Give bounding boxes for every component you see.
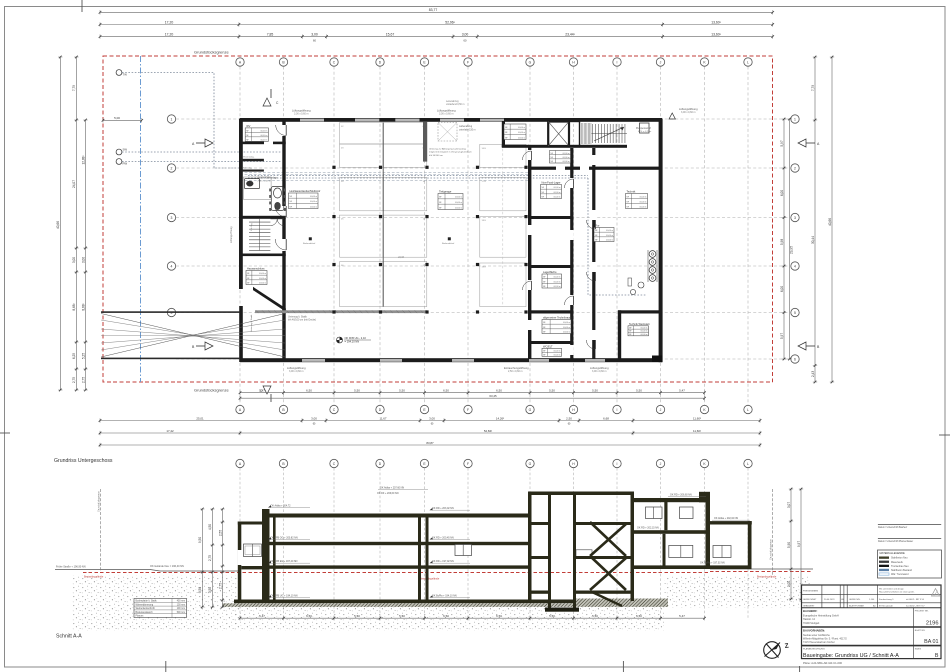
svg-text:MATERIALLEGENDE: MATERIALLEGENDE xyxy=(880,551,905,555)
svg-text:Entrauchungsöffnung: Entrauchungsöffnung xyxy=(504,366,529,370)
svg-text:17,20: 17,20 xyxy=(165,32,174,36)
svg-text:74172 Neuenstadt am Kocher: 74172 Neuenstadt am Kocher xyxy=(803,641,835,644)
svg-text:Hackstr. 12: Hackstr. 12 xyxy=(803,618,816,621)
svg-text:00,00 m: 00,00 m xyxy=(259,273,266,275)
svg-text:2196: 2196 xyxy=(926,621,939,627)
svg-text:5,97: 5,97 xyxy=(780,333,784,339)
svg-text:möglst mit integriert in Versp: möglst mit integriert in Verspruzug/unte… xyxy=(429,151,472,154)
svg-text:WC/ELT: WC/ELT xyxy=(543,344,553,348)
svg-text:Bodenplatte lt. Statik: Bodenplatte lt. Statik xyxy=(136,600,158,603)
svg-text:Unterzug zur Abfangung Ladenau: Unterzug zur Abfangung Ladenaufzug xyxy=(429,148,467,151)
svg-text:Planum: Planum xyxy=(136,616,144,618)
svg-text:13x Stg: 13x Stg xyxy=(250,223,253,231)
svg-text:00,00 m: 00,00 m xyxy=(518,137,525,139)
svg-text:00,00 m: 00,00 m xyxy=(554,192,561,194)
svg-text:tel 06/02 - 887 9 56: tel 06/02 - 887 9 56 xyxy=(906,598,925,601)
svg-text:3,00: 3,00 xyxy=(72,257,76,263)
svg-text:00,00 m: 00,00 m xyxy=(518,127,525,129)
svg-text:19 E: 19 E xyxy=(482,267,487,269)
svg-text:G: G xyxy=(529,61,532,65)
svg-text:SW: SW xyxy=(123,148,128,152)
svg-text:4: 4 xyxy=(171,265,173,269)
svg-text:Frühe Straße + 196,90 NN: Frühe Straße + 196,90 NN xyxy=(56,566,86,569)
svg-text:5,47: 5,47 xyxy=(259,614,265,618)
svg-text:OK Attika + 202,02 NN: OK Attika + 202,02 NN xyxy=(714,517,738,520)
svg-text:F: F xyxy=(467,408,469,412)
svg-text:4: 4 xyxy=(794,265,796,269)
svg-text:00,00 m: 00,00 m xyxy=(261,139,268,141)
svg-text:13,60²: 13,60² xyxy=(711,32,721,36)
svg-text:2,50: 2,50 xyxy=(566,416,572,420)
svg-text:00,00 m: 00,00 m xyxy=(455,207,462,209)
svg-text:G: G xyxy=(529,408,532,412)
svg-text:6,50: 6,50 xyxy=(496,389,502,393)
svg-text:3,00: 3,00 xyxy=(429,416,435,420)
svg-text:00,00 m: 00,00 m xyxy=(554,187,561,189)
svg-text:OK Gelände Neu = 196,40 NN: OK Gelände Neu = 196,40 NN xyxy=(150,565,184,568)
svg-text:100 mm: 100 mm xyxy=(177,608,185,610)
svg-text:00,00 m: 00,00 m xyxy=(606,235,613,237)
svg-text:OK BuPla + 197,02 NN: OK BuPla + 197,02 NN xyxy=(700,562,725,565)
svg-text:7,85: 7,85 xyxy=(267,32,274,36)
svg-text:83,87: 83,87 xyxy=(426,441,434,445)
svg-text:00,00 m: 00,00 m xyxy=(641,331,648,333)
svg-text:00,00 m: 00,00 m xyxy=(563,161,570,163)
svg-text:00,00 m: 00,00 m xyxy=(563,322,570,324)
svg-text:J: J xyxy=(660,408,662,412)
svg-text:Datum / Unterschrift Planverfa: Datum / Unterschrift Planverfasser xyxy=(878,540,913,543)
svg-text:00,00 m: 00,00 m xyxy=(455,202,462,204)
svg-text:30,44: 30,44 xyxy=(811,236,815,244)
svg-text:00,00 m: 00,00 m xyxy=(640,206,647,208)
svg-text:6,50: 6,50 xyxy=(496,614,502,618)
svg-text:2,75: 2,75 xyxy=(208,555,212,561)
svg-text:Grundriss Untergeschoss: Grundriss Untergeschoss xyxy=(54,458,113,464)
svg-text:I: I xyxy=(617,408,618,412)
svg-text:b/h 40/100 cm (mit Decke): b/h 40/100 cm (mit Decke) xyxy=(288,319,316,322)
svg-text:OK RD + 200,45 NN: OK RD + 200,45 NN xyxy=(432,537,454,540)
svg-text:5,50: 5,50 xyxy=(354,389,360,393)
svg-text:2,50 x 0,60 m: 2,50 x 0,60 m xyxy=(508,370,523,373)
svg-text:fax 06/02 - 887 9 57: fax 06/02 - 887 9 57 xyxy=(906,606,925,608)
svg-text:Baueingabe: Grundriss UG / Sch: Baueingabe: Grundriss UG / Schnitt A-A xyxy=(803,653,899,659)
svg-text:9,50: 9,50 xyxy=(198,537,202,543)
svg-text:F: F xyxy=(467,61,469,65)
svg-text:3,00: 3,00 xyxy=(311,32,318,36)
svg-text:allgemeiner Technikraum: allgemeiner Technikraum xyxy=(543,316,572,320)
svg-text:23,44²: 23,44² xyxy=(565,32,575,36)
svg-text:29,95: 29,95 xyxy=(789,246,793,254)
svg-text:87700 aalstadt: 87700 aalstadt xyxy=(879,605,893,608)
svg-text:6,50: 6,50 xyxy=(443,389,449,393)
svg-text:500 mm: 500 mm xyxy=(177,612,185,614)
svg-text:3,00 x 0,60 m: 3,00 x 0,60 m xyxy=(294,113,309,116)
svg-text:Stahlbeton Bestand: Stahlbeton Bestand xyxy=(891,569,913,572)
svg-text:00,00 m: 00,00 m xyxy=(554,196,561,198)
svg-text:11,60²: 11,60² xyxy=(693,429,701,433)
svg-text:Grundstücksgrenze: Grundstücksgrenze xyxy=(194,388,229,393)
svg-text:OK BuPla + 194,10 NN: OK BuPla + 194,10 NN xyxy=(432,595,457,598)
svg-text:OK DF + 206,60 NN: OK DF + 206,60 NN xyxy=(377,492,399,495)
svg-text:Leitenabzug: Leitenabzug xyxy=(446,100,459,103)
svg-text:5,50: 5,50 xyxy=(399,614,405,618)
svg-text:Grundstücksgrenze: Grundstücksgrenze xyxy=(194,50,229,55)
svg-text:Wär. Trennwand: Wär. Trennwand xyxy=(891,573,909,576)
svg-text:Tiefgarage: Tiefgarage xyxy=(439,190,452,194)
svg-text:3,00 x 0,60 m: 3,00 x 0,60 m xyxy=(289,370,304,373)
svg-text:11,60²: 11,60² xyxy=(693,416,701,420)
svg-text:5,25: 5,25 xyxy=(81,353,85,359)
svg-text:3,50: 3,50 xyxy=(198,587,202,593)
svg-text:OK RD + 203,02 NN: OK RD + 203,02 NN xyxy=(432,507,454,510)
svg-text:Technik: Technik xyxy=(627,190,636,194)
svg-text:5,50: 5,50 xyxy=(592,614,598,618)
svg-text:= 194,10 NN: = 194,10 NN xyxy=(345,340,360,344)
svg-text:Heizkastenlander/Multiroof: Heizkastenlander/Multiroof xyxy=(290,189,321,193)
svg-text:J: J xyxy=(660,462,662,466)
svg-text:J: J xyxy=(660,61,662,65)
svg-text:3,00: 3,00 xyxy=(787,581,791,587)
svg-text:17,20: 17,20 xyxy=(165,20,174,24)
svg-text:1:100: 1:100 xyxy=(869,599,875,601)
svg-text:25,01: 25,01 xyxy=(196,416,204,420)
svg-text:6,50: 6,50 xyxy=(306,389,312,393)
svg-text:RW: RW xyxy=(123,162,128,166)
svg-text:Mauerwerk: Mauerwerk xyxy=(891,561,904,564)
svg-text:Sauberkeitsschicht: Sauberkeitsschicht xyxy=(136,607,156,610)
svg-text:5,47: 5,47 xyxy=(679,614,685,618)
svg-text:3: 3 xyxy=(171,216,173,220)
svg-text:12,88²: 12,88² xyxy=(81,155,85,164)
svg-text:24,07: 24,07 xyxy=(72,180,76,188)
svg-text:5,50: 5,50 xyxy=(636,614,642,618)
svg-text:Wärmedämmung: Wärmedämmung xyxy=(136,603,154,606)
svg-text:00,00 m: 00,00 m xyxy=(518,132,525,134)
svg-text:8,68²: 8,68² xyxy=(72,303,76,310)
svg-text:unterlabt 0,50 m: unterlabt 0,50 m xyxy=(459,128,476,131)
svg-text:Wilhelm-Mägdefrau-Str. 5 / Flu: Wilhelm-Mägdefrau-Str. 5 / Flurst. 4017/… xyxy=(803,637,847,640)
svg-text:WV: WV xyxy=(246,124,250,128)
svg-text:00,00 m: 00,00 m xyxy=(641,334,648,336)
svg-text:3: 3 xyxy=(794,216,796,220)
svg-text:00,00 m: 00,00 m xyxy=(554,350,561,352)
svg-text:14,26²: 14,26² xyxy=(496,416,504,420)
svg-text:BAUHERR:: BAUHERR: xyxy=(803,609,817,613)
svg-text:40,66: 40,66 xyxy=(56,221,60,229)
svg-text:00,00 m: 00,00 m xyxy=(261,130,268,132)
svg-text:11,67: 11,67 xyxy=(379,416,386,420)
svg-text:00,00 m: 00,00 m xyxy=(310,201,317,203)
svg-text:OK RD + 206,60 NN: OK RD + 206,60 NN xyxy=(670,493,692,496)
svg-text:Bodenablauf: Bodenablauf xyxy=(442,243,455,245)
svg-text:00,00 m: 00,00 m xyxy=(554,281,561,283)
svg-text:00,00 m: 00,00 m xyxy=(641,327,648,329)
svg-text:5,50: 5,50 xyxy=(354,614,360,618)
svg-text:1: 1 xyxy=(794,118,796,122)
svg-text:2,75: 2,75 xyxy=(81,377,85,383)
svg-text:5,47: 5,47 xyxy=(679,389,685,393)
svg-text:Non-Food-Lager: Non-Food-Lager xyxy=(542,181,561,185)
svg-text:I: I xyxy=(617,462,618,466)
svg-text:4,76 x 4,76 m: 4,76 x 4,76 m xyxy=(638,131,651,133)
svg-text:17,42: 17,42 xyxy=(166,429,174,433)
svg-text:Trockenbau Neu: Trockenbau Neu xyxy=(891,565,909,568)
svg-text:5,50: 5,50 xyxy=(592,389,598,393)
svg-text:GEÄNDERT: GEÄNDERT xyxy=(803,605,815,608)
svg-text:Kälteübg.: Kälteübg. xyxy=(243,166,253,169)
svg-text:INDEX: INDEX xyxy=(915,649,922,651)
svg-text:Wir architekten und design: Wir architekten und design xyxy=(879,587,904,590)
svg-text:00,00 m: 00,00 m xyxy=(563,327,570,329)
svg-text:00,00 m: 00,00 m xyxy=(554,354,561,356)
svg-text:OK Attika + 207,60 NN: OK Attika + 207,60 NN xyxy=(380,487,404,490)
svg-text:PLANBEZEICHNUNG:: PLANBEZEICHNUNG: xyxy=(803,648,826,651)
svg-text:Evangelische Heimstiftung GmbH: Evangelische Heimstiftung GmbH xyxy=(803,615,839,618)
svg-text:Technik Werkstatt: Technik Werkstatt xyxy=(629,322,650,326)
svg-text:16 E: 16 E xyxy=(482,148,487,150)
svg-text:BLATT NR.: BLATT NR. xyxy=(915,629,926,632)
svg-text:6,50: 6,50 xyxy=(306,614,312,618)
svg-text:1: 1 xyxy=(171,118,173,122)
svg-text:OK FFB OG + 200,82 NN: OK FFB OG + 200,82 NN xyxy=(271,537,298,540)
svg-text:2,75: 2,75 xyxy=(218,583,222,589)
svg-text:3,00 x 0,60 m: 3,00 x 0,60 m xyxy=(681,111,696,114)
svg-text:2: 2 xyxy=(794,167,796,171)
svg-text:Lüftungsöffnung: Lüftungsöffnung xyxy=(287,366,306,370)
svg-text:00,00 m: 00,00 m xyxy=(563,157,570,159)
svg-text:3,00: 3,00 xyxy=(462,32,469,36)
svg-text:Pläne: AuS-NBA-AR-GR-U1-000: Pläne: AuS-NBA-AR-GR-U1-000 xyxy=(803,661,842,665)
svg-text:Pumpensumpf: Pumpensumpf xyxy=(636,128,651,130)
svg-text:L: L xyxy=(747,61,749,65)
svg-text:Datum / Unterschrift Bauherr: Datum / Unterschrift Bauherr xyxy=(878,526,907,529)
svg-text:100 mm: 100 mm xyxy=(177,604,185,606)
svg-text:5,47: 5,47 xyxy=(259,389,265,393)
svg-text:3,50: 3,50 xyxy=(208,587,212,593)
svg-text:3,00 x 0,60 m: 3,00 x 0,60 m xyxy=(439,113,454,116)
svg-text:00,00 m: 00,00 m xyxy=(606,230,613,232)
svg-text:umlaufend 0,50 m: umlaufend 0,50 m xyxy=(446,104,464,106)
svg-text:b/h 30/100 cm: b/h 30/100 cm xyxy=(429,155,443,157)
svg-text:BLATTFORMAT: BLATTFORMAT xyxy=(849,605,865,608)
svg-text:40,66: 40,66 xyxy=(828,218,832,226)
svg-text:BAUVORHABEN:: BAUVORHABEN: xyxy=(803,628,825,632)
svg-text:I: I xyxy=(617,61,618,65)
svg-text:18 E: 18 E xyxy=(482,220,487,222)
svg-text:Bodenablauf: Bodenablauf xyxy=(303,243,316,245)
svg-text:Lagerfläche: Lagerfläche xyxy=(543,270,557,274)
svg-text:OK FFB EG + 197,40 NN: OK FFB EG + 197,40 NN xyxy=(271,560,298,563)
svg-text:Bodenaustausch: Bodenaustausch xyxy=(136,611,154,614)
svg-text:3,07: 3,07 xyxy=(787,502,791,508)
svg-text:5,90: 5,90 xyxy=(787,542,791,548)
svg-text:3,00: 3,00 xyxy=(81,257,85,263)
svg-text:00,00 m: 00,00 m xyxy=(259,278,266,280)
svg-text:GEZEICHNET: GEZEICHNET xyxy=(803,599,817,601)
svg-text:3,00: 3,00 xyxy=(311,416,317,420)
svg-text:6,50: 6,50 xyxy=(443,614,449,618)
svg-text:FREIGEGEBEN: FREIGEGEBEN xyxy=(803,591,819,593)
svg-text:2: 2 xyxy=(171,167,173,171)
svg-text:B: B xyxy=(935,653,939,659)
svg-text:00,00 m: 00,00 m xyxy=(606,239,613,241)
svg-text:00,00 m: 00,00 m xyxy=(259,282,266,284)
svg-text:7,79: 7,79 xyxy=(811,85,815,91)
svg-text:Bestandsgelände: Bestandsgelände xyxy=(84,576,104,579)
svg-text:Hausanschluss: Hausanschluss xyxy=(247,267,265,271)
svg-text:8,68²: 8,68² xyxy=(81,303,85,310)
svg-text:Wärmeübg.: Wärmeübg. xyxy=(243,156,255,159)
svg-text:52,84²: 52,84² xyxy=(484,429,492,433)
svg-text:Grundstücksgrenze: Grundstücksgrenze xyxy=(98,491,101,512)
svg-text:6: 6 xyxy=(794,358,796,362)
svg-text:6,68: 6,68 xyxy=(603,416,609,420)
svg-text:83,77: 83,77 xyxy=(429,8,438,12)
svg-text:00,00 m: 00,00 m xyxy=(640,196,647,198)
svg-text:TW: TW xyxy=(123,73,128,77)
svg-text:5,97: 5,97 xyxy=(780,140,784,146)
svg-text:Haus pfäff und färben wir eine: Haus pfäff und färben wir einen gestln. xyxy=(879,591,915,594)
svg-text:5,50: 5,50 xyxy=(636,389,642,393)
svg-text:450 mm: 450 mm xyxy=(177,601,185,603)
svg-text:PROJEKT NR.: PROJEKT NR. xyxy=(915,610,929,612)
svg-text:23,08: 23,08 xyxy=(398,257,404,259)
svg-text:00,00 m: 00,00 m xyxy=(310,196,317,198)
svg-text:13,60²: 13,60² xyxy=(711,20,721,24)
svg-text:20.04.2023: 20.04.2023 xyxy=(824,599,835,601)
svg-text:52,96²: 52,96² xyxy=(445,20,455,24)
svg-text:Bestandsgelände: Bestandsgelände xyxy=(420,578,440,581)
svg-text:BA 01: BA 01 xyxy=(924,639,938,645)
svg-text:L: L xyxy=(747,462,749,466)
svg-text:5,50: 5,50 xyxy=(399,389,405,393)
svg-text:OK FFB UG - 2,10: OK FFB UG - 2,10 xyxy=(345,336,367,340)
svg-text:5,98: 5,98 xyxy=(780,239,784,245)
svg-text:3,00 x 0,60 m: 3,00 x 0,60 m xyxy=(592,370,607,373)
svg-text:17 E: 17 E xyxy=(482,181,487,183)
svg-text:Schnitt A-A: Schnitt A-A xyxy=(56,634,82,640)
svg-text:6,25: 6,25 xyxy=(72,353,76,359)
svg-text:9,97: 9,97 xyxy=(797,541,801,547)
svg-text:00,00 m: 00,00 m xyxy=(261,135,268,137)
svg-text:2,55: 2,55 xyxy=(218,530,222,536)
svg-text:Stahlbeton Neu: Stahlbeton Neu xyxy=(891,557,908,560)
svg-text:OK FFB UG + 194,10 NN: OK FFB UG + 194,10 NN xyxy=(271,595,298,598)
svg-text:00,00 m: 00,00 m xyxy=(563,153,570,155)
svg-text:Bestandsgelände: Bestandsgelände xyxy=(757,576,777,579)
svg-text:Lüftungsöffnung: Lüftungsöffnung xyxy=(590,366,609,370)
svg-text:OK RD + 197,02 NN: OK RD + 197,02 NN xyxy=(432,560,454,563)
svg-text:5,50: 5,50 xyxy=(549,614,555,618)
svg-text:5: 5 xyxy=(794,311,796,315)
svg-text:00,00 m: 00,00 m xyxy=(640,201,647,203)
svg-text:Grundstücksgrenze: Grundstücksgrenze xyxy=(769,539,772,560)
svg-text:5,00: 5,00 xyxy=(114,116,120,120)
svg-text:2,43: 2,43 xyxy=(811,371,815,377)
svg-text:6,00: 6,00 xyxy=(780,286,784,292)
svg-text:Lüftungsöffnung: Lüftungsöffnung xyxy=(230,226,233,243)
svg-text:00,00 m: 00,00 m xyxy=(554,277,561,279)
svg-text:OK RD + 202,15 NN: OK RD + 202,15 NN xyxy=(637,527,659,530)
svg-text:2,75: 2,75 xyxy=(72,377,76,383)
svg-text:Unterzug lt. Statik: Unterzug lt. Statik xyxy=(250,314,253,332)
svg-text:Kornbachweg 9: Kornbachweg 9 xyxy=(879,598,894,601)
svg-text:00,00 m: 00,00 m xyxy=(563,331,570,333)
svg-text:7,79: 7,79 xyxy=(72,85,76,91)
svg-text:L: L xyxy=(747,408,749,412)
svg-text:63,45: 63,45 xyxy=(489,394,497,398)
svg-text:F: F xyxy=(467,462,469,466)
svg-text:5,50: 5,50 xyxy=(549,389,555,393)
svg-text:4,50: 4,50 xyxy=(208,524,212,530)
svg-text:15,67: 15,67 xyxy=(386,32,395,36)
svg-text:OK Attika + 204,72: OK Attika + 204,72 xyxy=(271,505,292,508)
svg-text:G: G xyxy=(529,462,532,466)
svg-text:00,00 m: 00,00 m xyxy=(554,286,561,288)
svg-text:70190 Stuttgart: 70190 Stuttgart xyxy=(803,622,820,625)
svg-text:6,00: 6,00 xyxy=(780,190,784,196)
svg-text:00,00 m: 00,00 m xyxy=(455,197,462,199)
svg-text:GEZEICHN.: GEZEICHN. xyxy=(849,599,861,601)
svg-text:00,00 m: 00,00 m xyxy=(310,206,317,208)
svg-text:Neubau einer Großküche: Neubau einer Großküche xyxy=(803,634,831,637)
svg-text:Laibenabzug: Laibenabzug xyxy=(459,126,473,128)
